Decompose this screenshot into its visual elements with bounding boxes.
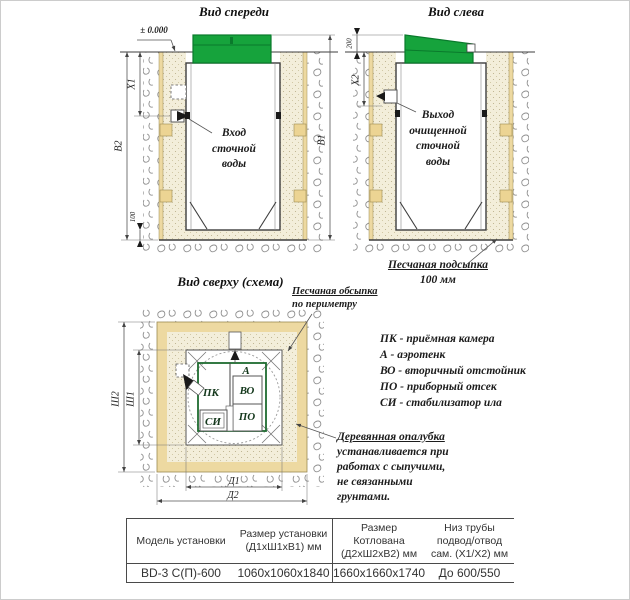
formwork-note-line4: не связанными [337, 475, 457, 490]
legend-item-si: СИ - стабилизатор ила [380, 395, 590, 411]
front-soil-right [307, 52, 323, 254]
front-dim-b1: B1 [317, 134, 328, 145]
spec-header-unit-size: Размер установки (Д1хШ1хВ1) мм [235, 519, 332, 564]
front-formwork-left [159, 52, 163, 240]
spec-header-pit-size-line2: Котлована [353, 535, 404, 548]
outlet-label-line3: сточной [398, 139, 478, 155]
spec-header-model-line1: Модель установки [136, 535, 225, 548]
top-soil-right [307, 322, 324, 472]
left-sand-bedding [373, 230, 509, 240]
front-sand-right [280, 52, 303, 240]
legend-item-vo: ВО - вторичный отстойник [380, 363, 590, 379]
spec-header-unit-size-line2: (Д1хШ1хВ1) мм [245, 541, 321, 554]
compartment-vo-label: ВО [239, 385, 255, 397]
formwork-note-line5: грунтами. [337, 490, 457, 505]
top-dim-d2: Д2 [226, 490, 238, 501]
front-sand-left [163, 52, 186, 240]
front-dim-x1: X1 [127, 78, 138, 90]
left-view-title: Вид слева [378, 4, 534, 20]
spec-cell-model: BD-3 С(П)-600 [127, 564, 235, 582]
left-dim-x2: X2 [351, 74, 362, 86]
top-inlet-dashed-box [176, 364, 189, 377]
sand-bedding-note-line2: 100 мм [382, 273, 494, 288]
legend-item-po: ПО - приборный отсек [380, 379, 590, 395]
installation-drawing: B2 X1 100 B1 [0, 0, 630, 600]
front-sand-bedding [163, 230, 303, 240]
front-view-title: Вид спереди [156, 4, 312, 20]
front-dim-b2: B2 [114, 140, 125, 151]
left-lid [405, 35, 473, 63]
left-dim-lid-height: 200 [346, 38, 354, 49]
spec-header-unit-size-line1: Размер установки [240, 528, 328, 541]
spec-header-pit-size-line1: Размер [361, 522, 397, 535]
formwork-note: Деревянная опалубка устанавливается при … [337, 430, 457, 505]
left-wall-mark-right [482, 110, 487, 117]
spec-header-pipe-bottom: Низ трубы подвод/отвод сам. (Х1/Х2) мм [425, 519, 514, 564]
top-outlet-stub [229, 332, 241, 349]
spec-header-pit-size-line3: (Д2хШ2хВ2) мм [341, 548, 417, 561]
formwork-note-line3: работах с сыпучими, [337, 460, 457, 475]
left-sand-right [486, 52, 509, 240]
outlet-label-line4: воды [398, 155, 478, 171]
sand-bedding-note: Песчаная подсыпка 100 мм [382, 258, 494, 287]
sand-backfill-note-line2: по периметру [292, 299, 396, 312]
legend-item-pk: ПК - приёмная камера [380, 331, 590, 347]
sand-bedding-note-line1: Песчаная подсыпка [382, 258, 494, 273]
left-sand-left [373, 52, 396, 240]
compartment-pk-label: ПК [202, 387, 220, 399]
top-view-drawing: ПК А ВО ПО СИ [111, 307, 337, 505]
spec-table: Модель установки Размер установки (Д1хШ1… [126, 518, 514, 583]
sand-backfill-note-line1: Песчаная обсыпка [292, 286, 396, 299]
datum-label: ± 0.000 [130, 25, 178, 36]
front-dim-bedding-100: 100 [129, 211, 137, 222]
top-dim-d1: Д1 [227, 476, 239, 487]
formwork-note-line2: устанавливается при [337, 445, 457, 460]
spec-header-pit-size: Размер Котлована (Д2хШ2хВ2) мм [332, 519, 425, 564]
left-lid-latch [467, 44, 475, 52]
compartment-legend: ПК - приёмная камера А - аэротенк ВО - в… [380, 331, 590, 411]
left-formwork-right [509, 52, 513, 240]
formwork-note-line1: Деревянная опалубка [337, 430, 457, 445]
front-wall-mark-right [276, 112, 281, 119]
outlet-label-line2: очищенной [398, 124, 478, 140]
front-inlet-dashed-box [171, 85, 186, 99]
left-formwork-left [369, 52, 373, 240]
compartment-po-label: ПО [238, 411, 256, 423]
compartment-a-label: А [241, 365, 249, 377]
front-lid-handle [230, 37, 233, 44]
top-dim-sh2: Ш2 [111, 391, 122, 407]
spec-header-pipe-line1: Низ трубы [444, 522, 495, 535]
spec-cell-unit-size: 1060x1060x1840 [235, 564, 332, 582]
top-soil-left [140, 322, 157, 472]
inlet-label-line1: Вход [196, 126, 272, 142]
left-soil-right [513, 52, 529, 254]
outlet-label-line1: Выход [398, 108, 478, 124]
inlet-label: Вход сточной воды [196, 126, 272, 173]
left-soil-bottom [369, 241, 513, 254]
spec-header-pipe-line2: подвод/отвод [437, 535, 502, 548]
spec-header-pipe-line3: сам. (Х1/Х2) мм [431, 548, 508, 561]
spec-cell-pipe-bottom: До 600/550 [425, 564, 514, 582]
front-soil-left [143, 52, 159, 254]
left-outlet-box [384, 90, 397, 103]
inlet-label-line3: воды [196, 157, 272, 173]
inlet-label-line2: сточной [196, 142, 272, 158]
compartment-si-label: СИ [205, 416, 221, 428]
legend-item-a: А - аэротенк [380, 347, 590, 363]
front-soil-bottom [159, 241, 307, 254]
top-dim-sh1: Ш1 [126, 391, 137, 407]
spec-header-model: Модель установки [127, 519, 235, 564]
front-formwork-right [303, 52, 307, 240]
outlet-label: Выход очищенной сточной воды [398, 108, 478, 170]
sand-backfill-note: Песчаная обсыпка по периметру [292, 286, 396, 311]
spec-cell-pit-size: 1660x1660x1740 [332, 564, 425, 582]
